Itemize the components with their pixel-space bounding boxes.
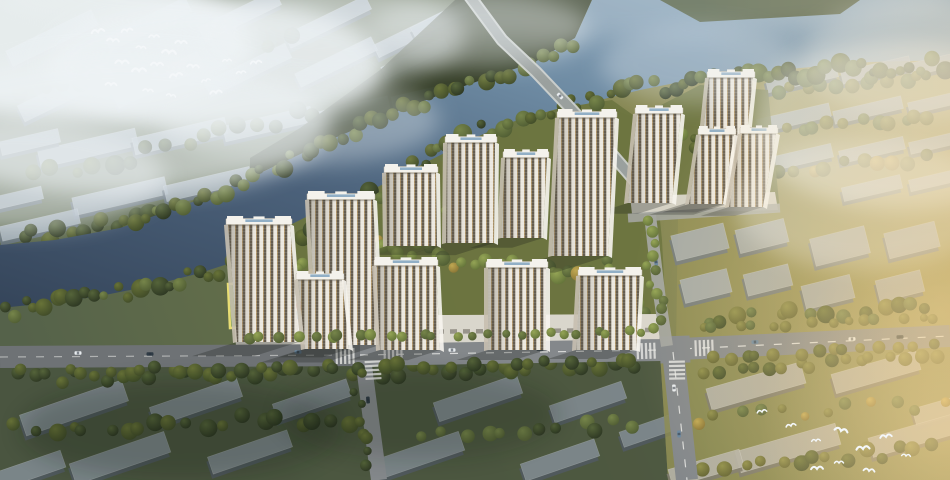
render-stage xyxy=(0,0,950,480)
aerial-architectural-rendering xyxy=(0,0,950,480)
